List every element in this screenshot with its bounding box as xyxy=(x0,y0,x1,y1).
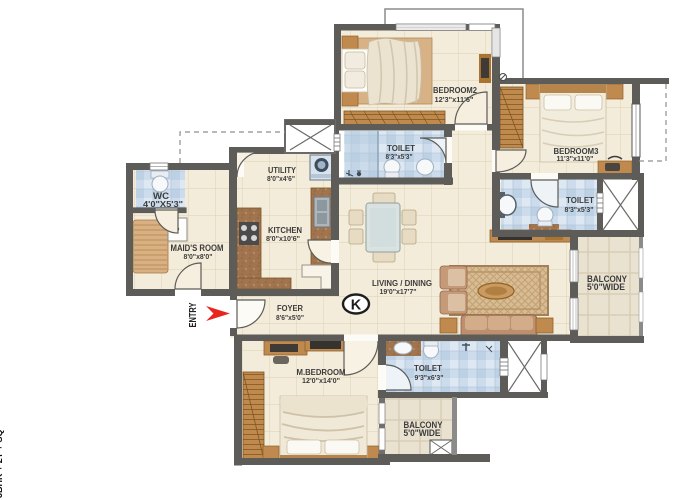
svg-text:8'3"x5'3": 8'3"x5'3" xyxy=(565,205,594,214)
svg-text:19'0"x17'7": 19'0"x17'7" xyxy=(380,287,417,296)
svg-text:8'0"x4'6": 8'0"x4'6" xyxy=(267,174,295,183)
svg-text:8'3"x5'3": 8'3"x5'3" xyxy=(386,152,413,161)
svg-text:12'3"x11'6": 12'3"x11'6" xyxy=(435,95,474,104)
svg-text:FOYER: FOYER xyxy=(277,303,304,313)
svg-text:3BHK + 2T + SQ: 3BHK + 2T + SQ xyxy=(0,429,4,498)
svg-text:TOILET: TOILET xyxy=(566,195,595,205)
svg-text:9'3"x6'3": 9'3"x6'3" xyxy=(415,373,444,382)
svg-text:8'6"x5'0": 8'6"x5'0" xyxy=(276,313,304,322)
svg-text:11'3"x11'0": 11'3"x11'0" xyxy=(557,154,594,163)
svg-text:8'0"x10'6": 8'0"x10'6" xyxy=(266,234,300,243)
svg-text:BEDROOM2: BEDROOM2 xyxy=(433,85,477,95)
svg-text:12'0"x14'0": 12'0"x14'0" xyxy=(302,376,340,385)
svg-text:8'0"x8'0": 8'0"x8'0" xyxy=(184,252,213,261)
svg-text:5'0"WIDE: 5'0"WIDE xyxy=(404,428,441,438)
svg-text:TOILET: TOILET xyxy=(414,363,443,373)
svg-text:5'0"WIDE: 5'0"WIDE xyxy=(587,282,625,292)
svg-text:ENTRY: ENTRY xyxy=(187,303,199,328)
svg-text:K: K xyxy=(351,298,362,314)
svg-text:4'0"X5'3": 4'0"X5'3" xyxy=(143,199,183,209)
